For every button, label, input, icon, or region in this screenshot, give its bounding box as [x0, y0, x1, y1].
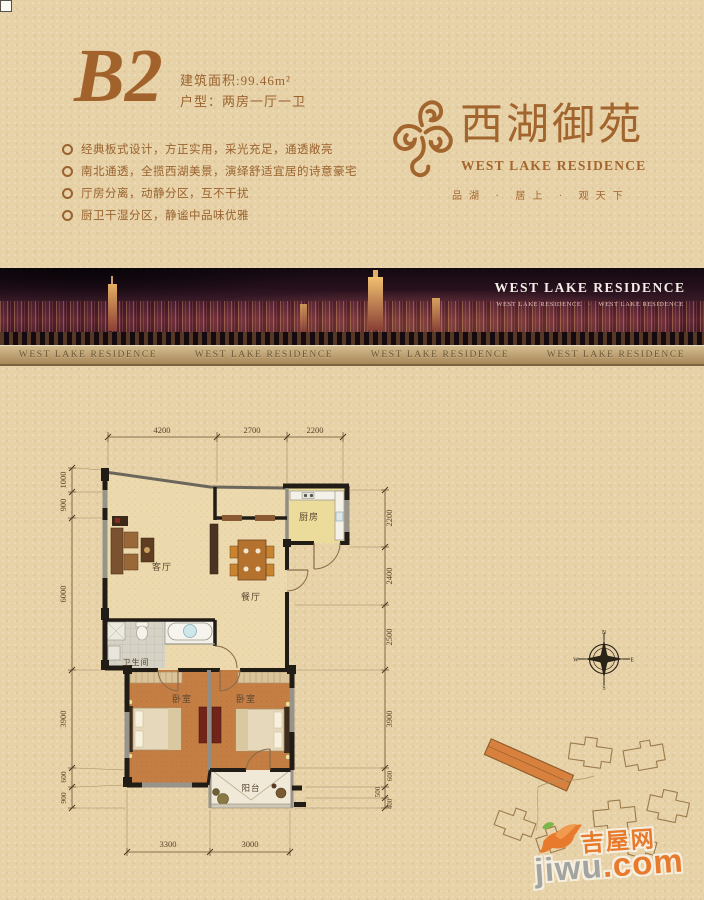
- compass-s: S: [602, 686, 605, 690]
- floorplan: 4200 2700 2200 3300 3000 1000 900 6000 3…: [50, 420, 400, 895]
- tower-silhouette: [108, 284, 117, 331]
- brand-name-cn: 西湖御苑: [460, 102, 660, 149]
- watermark: 吉屋网 jiwu.com: [525, 814, 704, 900]
- dim-left: 1000: [58, 472, 68, 489]
- banner-title: WEST LAKE RESIDENCE: [492, 280, 688, 296]
- tower-silhouette: [432, 298, 440, 331]
- highlighted-building: [484, 739, 573, 791]
- flyer-page: B2 建筑面积:99.46m² 户型：两房一厅一卫 经典板式设计，方正实用，采光…: [0, 0, 704, 900]
- corner-registration-mark: [0, 0, 12, 12]
- strip-label: WEST LAKE RESIDENCE: [352, 350, 528, 360]
- feature-text: 厨卫干湿分区，静谧中品味优雅: [81, 207, 249, 223]
- feature-item: 南北通透，全揽西湖美景，演绎舒适宜居的诗意豪宅: [62, 160, 357, 182]
- banner-caption: WEST LAKE RESIDENCE WEST LAKE RESIDENCE …: [492, 280, 688, 308]
- dim-left: 900: [58, 499, 68, 512]
- feature-text: 厅房分离，动静分区，互不干扰: [81, 185, 249, 201]
- unit-meta: 建筑面积:99.46m² 户型：两房一厅一卫: [180, 70, 306, 112]
- dim-top: 2700: [244, 425, 261, 435]
- strip-label: WEST LAKE RESIDENCE: [528, 350, 704, 360]
- room-label-kitchen: 厨房: [299, 511, 319, 522]
- room-label-bath: 卫生间: [123, 657, 150, 667]
- cityscape-banner: WEST LAKE RESIDENCE WEST LAKE RESIDENCE …: [0, 268, 704, 345]
- dim-right: 3900: [384, 711, 394, 728]
- tower-silhouette: [368, 277, 383, 330]
- ring-bullet-icon: [62, 166, 73, 177]
- dim-left: 6000: [58, 586, 68, 603]
- dim-left: 600: [59, 771, 68, 783]
- dim-bottom: 3300: [160, 839, 177, 849]
- compass-n: N: [602, 630, 607, 636]
- feature-item: 厅房分离，动静分区，互不干扰: [62, 182, 357, 204]
- unit-type-label: 户型：两房一厅一卫: [180, 91, 306, 112]
- tower-top: [373, 270, 378, 277]
- ring-bullet-icon: [62, 188, 73, 199]
- brand-tagline: 品湖 · 居上 · 观天下: [452, 187, 657, 202]
- harbour-water: [0, 332, 704, 345]
- tower-antenna: [111, 276, 113, 284]
- dim-right: 2500: [384, 629, 394, 646]
- tower-silhouette: [300, 304, 307, 332]
- unit-code: B2: [74, 38, 163, 114]
- room-label-bedroom1: 卧室: [172, 693, 192, 704]
- compass-e: E: [630, 657, 634, 663]
- dim-left: 900: [59, 792, 68, 804]
- dim-top: 2200: [307, 425, 324, 435]
- compass-rose-icon: N E S W: [573, 628, 635, 695]
- room-label-bedroom2: 卧室: [236, 693, 256, 704]
- brand-name-en: WEST LAKE RESIDENCE: [461, 158, 656, 174]
- feature-list: 经典板式设计，方正实用，采光充足，通透敞亮 南北通透，全揽西湖美景，演绎舒适宜居…: [62, 138, 357, 226]
- dim-right: 400: [386, 798, 394, 809]
- strip-label: WEST LAKE RESIDENCE: [176, 350, 352, 360]
- feature-text: 南北通透，全揽西湖美景，演绎舒适宜居的诗意豪宅: [81, 163, 357, 179]
- dim-right: 500: [374, 786, 382, 797]
- feature-item: 经典板式设计，方正实用，采光充足，通透敞亮: [62, 138, 357, 160]
- dim-left: 3900: [58, 711, 68, 728]
- dim-top: 4200: [154, 425, 171, 435]
- dim-right: 2400: [384, 568, 394, 585]
- room-label-dining: 餐厅: [241, 591, 261, 602]
- cloud-ornament-icon: [386, 90, 458, 187]
- ring-bullet-icon: [62, 210, 73, 221]
- compass-w: W: [573, 657, 579, 663]
- strip-label: WEST LAKE RESIDENCE: [0, 350, 176, 360]
- feature-text: 经典板式设计，方正实用，采光充足，通透敞亮: [81, 141, 333, 157]
- room-label-balcony: 阳台: [241, 783, 260, 793]
- room-label-living: 客厅: [152, 561, 172, 572]
- dim-right: 600: [386, 770, 394, 781]
- unit-area-label: 建筑面积:99.46m²: [180, 70, 306, 91]
- banner-subtitle: WEST LAKE RESIDENCE · WEST LAKE RESIDENC…: [492, 298, 688, 308]
- dim-right: 2200: [384, 510, 394, 527]
- banner-strip: WEST LAKE RESIDENCE WEST LAKE RESIDENCE …: [0, 345, 704, 366]
- dim-bottom: 3000: [242, 839, 259, 849]
- ring-bullet-icon: [62, 144, 73, 155]
- feature-item: 厨卫干湿分区，静谧中品味优雅: [62, 204, 357, 226]
